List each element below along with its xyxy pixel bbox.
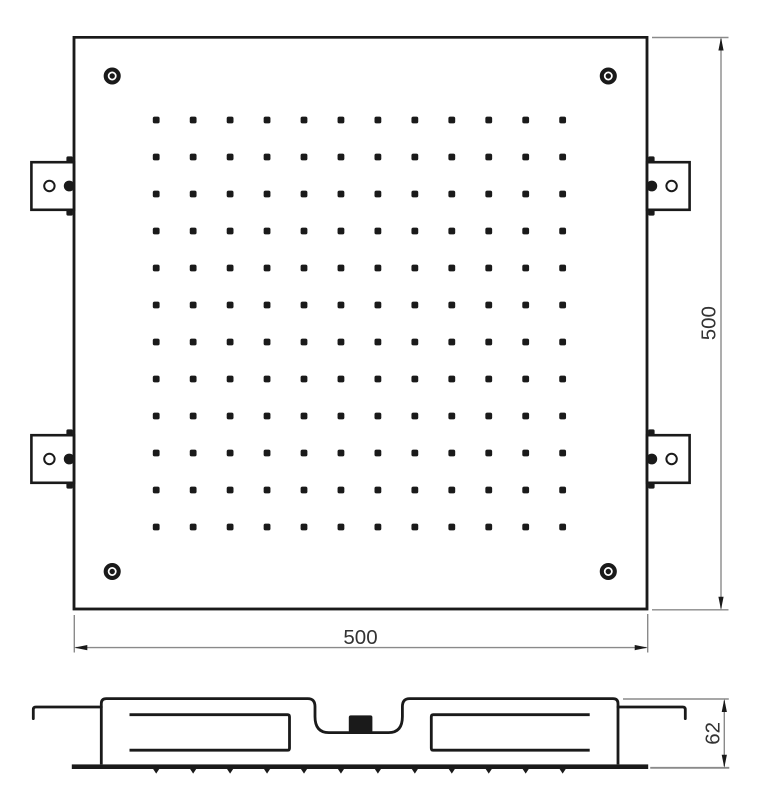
svg-text:500: 500 [343, 626, 377, 649]
svg-text:500: 500 [698, 306, 721, 340]
svg-text:62: 62 [702, 722, 725, 745]
